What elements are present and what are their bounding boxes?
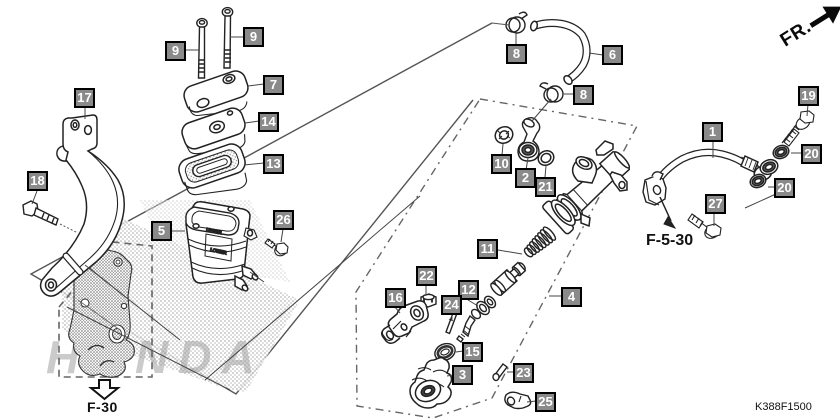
svg-text:2: 2 — [522, 170, 529, 185]
svg-text:16: 16 — [388, 290, 402, 305]
svg-text:20: 20 — [804, 146, 818, 161]
svg-text:4: 4 — [568, 289, 576, 304]
svg-text:13: 13 — [266, 156, 280, 171]
svg-text:8: 8 — [513, 46, 520, 61]
svg-text:K388F1500: K388F1500 — [755, 401, 812, 413]
svg-text:6: 6 — [609, 47, 616, 62]
svg-text:9: 9 — [172, 43, 179, 58]
svg-text:15: 15 — [465, 344, 479, 359]
svg-text:21: 21 — [538, 179, 552, 194]
svg-text:9: 9 — [250, 29, 257, 44]
svg-text:11: 11 — [481, 241, 495, 256]
svg-text:7: 7 — [270, 77, 277, 92]
svg-text:19: 19 — [801, 88, 815, 103]
svg-text:24: 24 — [444, 297, 459, 312]
svg-text:27: 27 — [708, 196, 722, 211]
svg-text:20: 20 — [777, 180, 791, 195]
svg-text:10: 10 — [494, 156, 508, 171]
svg-text:22: 22 — [419, 268, 433, 283]
svg-text:8: 8 — [580, 87, 587, 102]
svg-text:26: 26 — [276, 212, 290, 227]
svg-text:FR.: FR. — [777, 16, 815, 51]
svg-text:25: 25 — [538, 394, 552, 409]
svg-text:12: 12 — [461, 282, 475, 297]
svg-text:18: 18 — [30, 173, 44, 188]
svg-text:F-30: F-30 — [87, 399, 118, 415]
svg-text:3: 3 — [459, 367, 466, 382]
svg-text:14: 14 — [261, 114, 276, 129]
svg-text:1: 1 — [709, 124, 716, 139]
svg-text:F-5-30: F-5-30 — [646, 232, 693, 249]
svg-text:5: 5 — [158, 223, 165, 238]
svg-text:23: 23 — [516, 365, 530, 380]
svg-text:17: 17 — [77, 90, 91, 105]
